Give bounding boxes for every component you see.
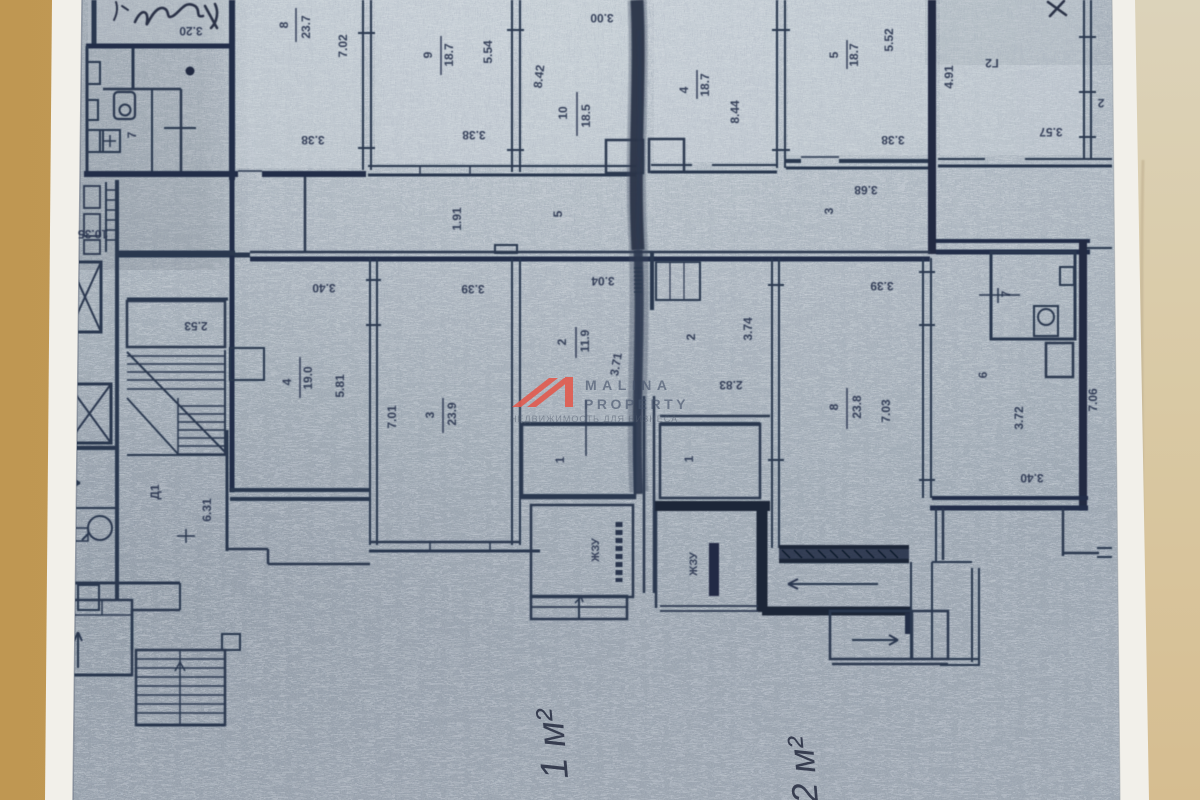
svg-text:ЖЗУ: ЖЗУ	[590, 538, 602, 563]
svg-text:3.39: 3.39	[461, 282, 485, 296]
svg-text:4.91: 4.91	[942, 65, 956, 89]
svg-text:3.57: 3.57	[1039, 125, 1063, 139]
svg-text:7.02: 7.02	[336, 34, 350, 58]
svg-text:5.52: 5.52	[882, 28, 896, 52]
svg-text:5: 5	[827, 51, 841, 58]
svg-text:23.9: 23.9	[445, 402, 459, 426]
svg-text:3.00: 3.00	[590, 11, 614, 25]
svg-text:1: 1	[682, 455, 696, 462]
svg-text:18.5: 18.5	[579, 104, 593, 128]
svg-text:3.40: 3.40	[312, 281, 336, 295]
svg-text:НЕДВИЖИМОСТЬ ДЛЯ БИЗНЕСА: НЕДВИЖИМОСТЬ ДЛЯ БИЗНЕСА	[510, 414, 678, 424]
svg-text:7.03: 7.03	[879, 399, 893, 423]
svg-text:1 м²: 1 м²	[529, 706, 577, 781]
svg-text:23.7: 23.7	[299, 15, 313, 39]
svg-text:3.04: 3.04	[591, 274, 615, 288]
svg-text:8.44: 8.44	[728, 100, 742, 124]
svg-text:2: 2	[684, 333, 698, 340]
svg-text:3.74: 3.74	[741, 317, 755, 341]
svg-text:7: 7	[125, 131, 139, 138]
svg-text:7: 7	[999, 290, 1013, 297]
svg-text:18.7: 18.7	[442, 43, 456, 67]
svg-text:3.68: 3.68	[854, 183, 878, 197]
svg-text:2: 2	[1097, 96, 1104, 110]
svg-text:ЖЗУ: ЖЗУ	[688, 552, 700, 577]
svg-text:3.38: 3.38	[462, 128, 486, 142]
svg-text:10: 10	[556, 106, 570, 120]
svg-text:8: 8	[277, 21, 291, 28]
svg-text:23.8: 23.8	[850, 395, 864, 419]
svg-text:Д1: Д1	[148, 484, 162, 500]
svg-text:9: 9	[421, 51, 435, 58]
svg-text:2.53: 2.53	[184, 319, 208, 333]
svg-text:8.42: 8.42	[531, 64, 548, 89]
svg-text:3.38: 3.38	[301, 133, 325, 147]
svg-text:10.35: 10.35	[78, 227, 108, 241]
svg-text:3.40: 3.40	[1020, 471, 1044, 485]
svg-text:2: 2	[555, 338, 569, 345]
svg-text:19.0: 19.0	[301, 366, 315, 390]
svg-text:6.31: 6.31	[200, 498, 214, 522]
svg-text:5: 5	[551, 210, 565, 217]
svg-text:5.81: 5.81	[333, 374, 347, 398]
svg-text:6: 6	[976, 371, 990, 378]
svg-text:4: 4	[280, 378, 294, 385]
svg-text:Г2: Г2	[985, 56, 999, 70]
svg-text:11.9: 11.9	[578, 329, 592, 352]
svg-text:3: 3	[822, 207, 836, 214]
svg-text:18.7: 18.7	[847, 43, 861, 67]
svg-text:4: 4	[677, 86, 691, 93]
svg-text:7.06: 7.06	[1086, 388, 1100, 412]
svg-text:18.7: 18.7	[698, 73, 712, 97]
svg-text:2.83: 2.83	[719, 378, 743, 392]
svg-text:7.01: 7.01	[385, 405, 399, 429]
svg-text:MALINA: MALINA	[585, 377, 672, 393]
svg-text:1: 1	[553, 456, 567, 463]
svg-text:3.20: 3.20	[179, 24, 203, 38]
svg-text:8: 8	[827, 403, 841, 410]
svg-text:3: 3	[423, 411, 437, 418]
svg-text:PROPERTY: PROPERTY	[584, 396, 689, 412]
svg-text:5.54: 5.54	[481, 40, 495, 64]
svg-text:3.38: 3.38	[881, 133, 905, 147]
svg-text:1.91: 1.91	[450, 207, 464, 231]
svg-text:2 м²: 2 м²	[779, 733, 826, 800]
svg-text:3.72: 3.72	[1012, 406, 1026, 430]
svg-text:3.39: 3.39	[870, 279, 894, 293]
